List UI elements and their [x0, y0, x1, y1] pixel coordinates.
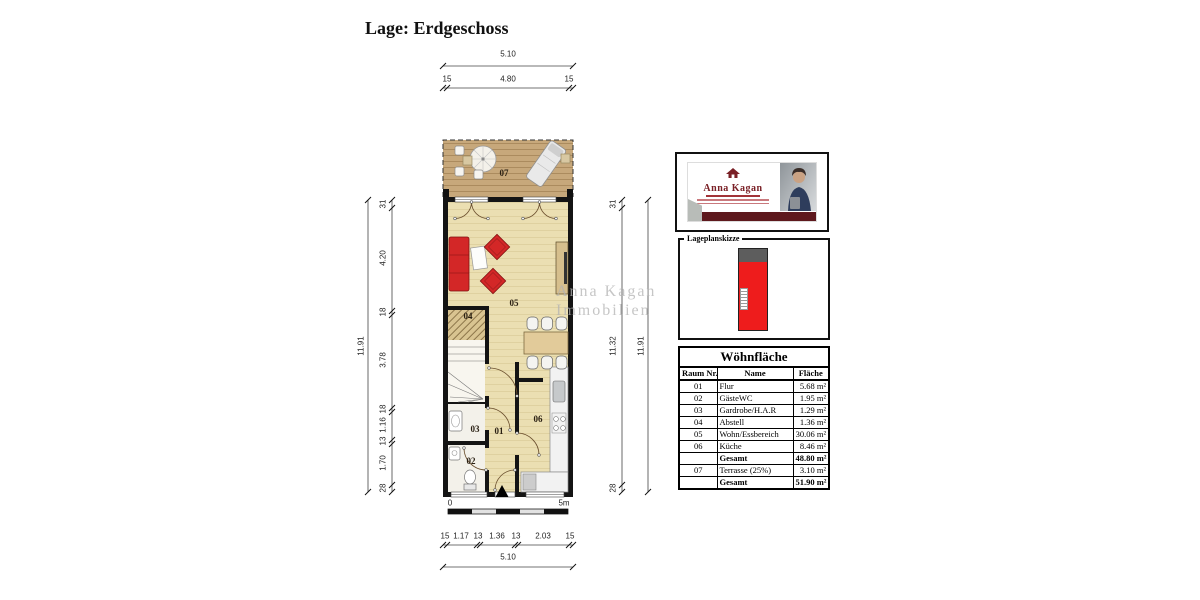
dim-left-0: 31: [379, 200, 388, 209]
col-header-flaeche: Fläche: [793, 367, 829, 380]
dim-left-7: 1.70: [379, 455, 388, 471]
agency-brand-block: Anna Kagan: [688, 163, 778, 204]
dim-left-5: 1.16: [379, 417, 388, 433]
toilet: [465, 470, 476, 484]
room-garderobe: [448, 404, 485, 441]
living-area-table: Wöhnfläche Raum Nr. Name Fläche 01 Flur …: [678, 346, 830, 490]
dim-right-0: 31: [609, 200, 618, 209]
table-row-grand-total: Gesamt 51.90 m²: [679, 477, 829, 490]
logo-tagline-bar: [706, 195, 760, 197]
agency-logo-card: Anna Kagan: [687, 162, 817, 222]
room-label-07: 07: [500, 168, 509, 178]
dining-table: [524, 332, 568, 354]
table-row-subtotal: Gesamt 48.80 m²: [679, 453, 829, 465]
coffee-table: [471, 246, 488, 270]
parasol-table: [470, 146, 496, 172]
room-label-03: 03: [471, 424, 480, 434]
logo-red-band: [702, 212, 816, 221]
agent-portrait-icon: [780, 163, 816, 211]
kitchen-sink: [553, 381, 565, 402]
siteplan-street-tag: [740, 288, 748, 310]
room-label-02: 02: [467, 456, 476, 466]
area-table-title: Wöhnfläche: [679, 347, 829, 367]
watermark: Anna Kagan Immobilien: [556, 282, 656, 320]
table-row: 03 Gardrobe/H.A.R 1.29 m²: [679, 405, 829, 417]
watermark-line2: Immobilien: [556, 301, 656, 320]
room-label-01: 01: [495, 426, 504, 436]
dim-bottom-2: 13: [474, 532, 483, 541]
dim-right-2: 28: [609, 484, 618, 493]
table-row: 05 Wohn/Essbereich 30.06 m²: [679, 429, 829, 441]
dining-set: [524, 317, 568, 369]
dim-left-2: 18: [379, 308, 388, 317]
logo-text-line: [697, 203, 769, 205]
dim-top-2: 15: [565, 75, 574, 84]
siteplan-building: [738, 248, 768, 331]
logo-text-line: [697, 199, 769, 201]
siteplan-legend: Lageplanskizze: [684, 234, 742, 243]
scale-bar: [448, 509, 568, 514]
lounger-side-table: [561, 154, 570, 163]
agency-logo-box: Anna Kagan: [675, 152, 829, 232]
dim-left-4: 18: [379, 405, 388, 414]
room-label-05: 05: [510, 298, 519, 308]
dim-left-1: 4.20: [379, 250, 388, 266]
floorplan-page: Lage: Erdgeschoss: [0, 0, 1200, 600]
watermark-line1: Anna Kagan: [556, 282, 656, 301]
siteplan-box: Lageplanskizze: [678, 238, 830, 340]
dim-bottom-1: 1.17: [453, 532, 469, 541]
staircase: [448, 340, 485, 402]
table-row: 01 Flur 5.68 m²: [679, 380, 829, 393]
dim-bottom-6: 15: [566, 532, 575, 541]
area-table-header-row: Raum Nr. Name Fläche: [679, 367, 829, 380]
scalebar-end: 5m: [558, 499, 569, 508]
dim-bottom-5: 2.03: [535, 532, 551, 541]
table-row: 04 Abstell 1.36 m²: [679, 417, 829, 429]
dim-top-total: 5.10: [500, 50, 516, 59]
table-row: 06 Küche 8.46 m²: [679, 441, 829, 453]
table-row: 02 GästeWC 1.95 m²: [679, 393, 829, 405]
siteplan-building-roof: [739, 249, 767, 262]
room-label-04: 04: [464, 311, 473, 321]
dim-bottom-total: 5.10: [500, 553, 516, 562]
sofa: [449, 237, 469, 291]
agent-photo: [780, 163, 816, 211]
dim-bottom-0: 15: [441, 532, 450, 541]
col-header-name: Name: [717, 367, 793, 380]
col-header-raum-nr: Raum Nr.: [679, 367, 717, 380]
dim-left-8: 28: [379, 484, 388, 493]
dim-top-0: 15: [443, 75, 452, 84]
dim-right-1: 11.32: [609, 336, 618, 355]
scalebar-start: 0: [448, 499, 452, 508]
table-row: 07 Terrasse (25%) 3.10 m²: [679, 465, 829, 477]
dim-left-total: 11.91: [357, 336, 366, 355]
dim-left-3: 3.78: [379, 352, 388, 368]
room-label-06: 06: [534, 414, 543, 424]
room-wc: [448, 445, 485, 492]
dim-bottom-4: 13: [512, 532, 521, 541]
house-icon: [726, 168, 740, 178]
dim-bottom-3: 1.36: [489, 532, 505, 541]
dim-right-total: 11.91: [637, 336, 646, 355]
dim-top-1: 4.80: [500, 75, 516, 84]
dim-left-6: 13: [379, 437, 388, 446]
agency-brand-name: Anna Kagan: [688, 183, 778, 194]
